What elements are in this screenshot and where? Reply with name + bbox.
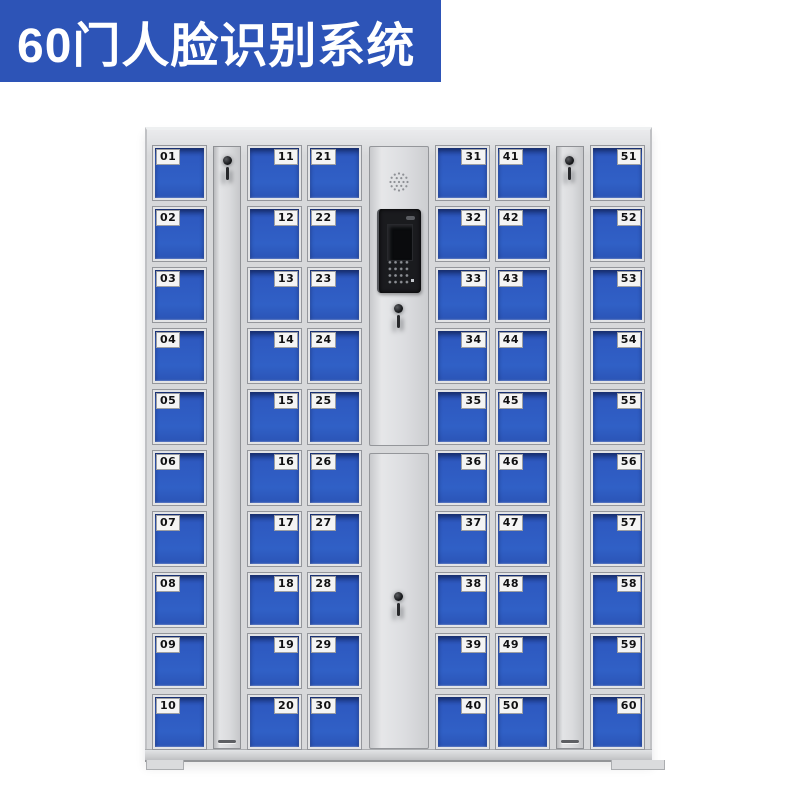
door-number-label: 57 bbox=[617, 515, 641, 531]
door-number-label: 40 bbox=[461, 698, 485, 714]
door-number-label: 60 bbox=[617, 698, 641, 714]
keyhole-circle bbox=[394, 592, 403, 601]
locker-door-37: 37 bbox=[436, 512, 489, 566]
locker-door-09: 09 bbox=[153, 634, 206, 688]
locker-door-39: 39 bbox=[436, 634, 489, 688]
door-number-label: 47 bbox=[499, 515, 523, 531]
cabinet-foot-right bbox=[611, 760, 665, 770]
keypad-highlight-dot bbox=[411, 279, 414, 282]
door-number-label: 17 bbox=[274, 515, 298, 531]
door-number-label: 25 bbox=[311, 393, 335, 409]
door-number-label: 04 bbox=[156, 332, 180, 348]
door-column-31-40: 31323334353637383940 bbox=[436, 146, 489, 749]
door-number-label: 15 bbox=[274, 393, 298, 409]
keyhole-stem bbox=[568, 167, 571, 180]
locker-door-21: 21 bbox=[308, 146, 361, 200]
door-number-label: 05 bbox=[156, 393, 180, 409]
locker-cabinet: 01020304050607080910 1112131415161718192… bbox=[145, 127, 652, 761]
keyhole-circle bbox=[394, 304, 403, 313]
locker-columns: 01020304050607080910 1112131415161718192… bbox=[147, 130, 650, 749]
locker-door-44: 44 bbox=[496, 329, 549, 383]
door-number-label: 14 bbox=[274, 332, 298, 348]
door-number-label: 22 bbox=[311, 210, 335, 226]
locker-door-25: 25 bbox=[308, 390, 361, 444]
cabinet-base bbox=[145, 749, 652, 762]
locker-door-23: 23 bbox=[308, 268, 361, 322]
locker-door-54: 54 bbox=[591, 329, 644, 383]
door-number-label: 41 bbox=[499, 149, 523, 165]
door-number-label: 32 bbox=[461, 210, 485, 226]
locker-door-55: 55 bbox=[591, 390, 644, 444]
locker-door-32: 32 bbox=[436, 207, 489, 261]
lock-strip-left bbox=[213, 146, 241, 749]
locker-door-28: 28 bbox=[308, 573, 361, 627]
locker-door-59: 59 bbox=[591, 634, 644, 688]
locker-door-34: 34 bbox=[436, 329, 489, 383]
locker-door-35: 35 bbox=[436, 390, 489, 444]
door-number-label: 23 bbox=[311, 271, 335, 287]
locker-door-07: 07 bbox=[153, 512, 206, 566]
door-number-label: 50 bbox=[499, 698, 523, 714]
door-column-51-60: 51525354555657585960 bbox=[591, 146, 644, 749]
door-number-label: 19 bbox=[274, 637, 298, 653]
door-number-label: 10 bbox=[156, 698, 180, 714]
door-number-label: 48 bbox=[499, 576, 523, 592]
locker-door-08: 08 bbox=[153, 573, 206, 627]
locker-door-41: 41 bbox=[496, 146, 549, 200]
locker-door-40: 40 bbox=[436, 695, 489, 749]
door-column-21-30: 21222324252627282930 bbox=[308, 146, 361, 749]
locker-door-29: 29 bbox=[308, 634, 361, 688]
locker-door-56: 56 bbox=[591, 451, 644, 505]
locker-door-51: 51 bbox=[591, 146, 644, 200]
door-column-41-50: 41424344454647484950 bbox=[496, 146, 549, 749]
door-number-label: 36 bbox=[461, 454, 485, 470]
locker-door-43: 43 bbox=[496, 268, 549, 322]
sensor-indicator-icon bbox=[406, 216, 415, 220]
door-number-label: 30 bbox=[311, 698, 335, 714]
locker-door-38: 38 bbox=[436, 573, 489, 627]
door-number-label: 45 bbox=[499, 393, 523, 409]
locker-door-04: 04 bbox=[153, 329, 206, 383]
door-number-label: 09 bbox=[156, 637, 180, 653]
door-number-label: 13 bbox=[274, 271, 298, 287]
door-number-label: 27 bbox=[311, 515, 335, 531]
keyhole-circle bbox=[565, 156, 574, 165]
locker-door-30: 30 bbox=[308, 695, 361, 749]
locker-door-13: 13 bbox=[248, 268, 301, 322]
locker-door-45: 45 bbox=[496, 390, 549, 444]
door-column-01-10: 01020304050607080910 bbox=[153, 146, 206, 749]
door-number-label: 18 bbox=[274, 576, 298, 592]
locker-door-57: 57 bbox=[591, 512, 644, 566]
locker-door-01: 01 bbox=[153, 146, 206, 200]
keyhole-icon bbox=[388, 302, 410, 336]
locker-door-26: 26 bbox=[308, 451, 361, 505]
locker-door-50: 50 bbox=[496, 695, 549, 749]
locker-door-36: 36 bbox=[436, 451, 489, 505]
keyhole-icon bbox=[559, 154, 581, 188]
door-number-label: 07 bbox=[156, 515, 180, 531]
door-number-label: 16 bbox=[274, 454, 298, 470]
camera-icon bbox=[387, 224, 413, 261]
locker-door-19: 19 bbox=[248, 634, 301, 688]
door-number-label: 08 bbox=[156, 576, 180, 592]
keypad-dots-icon bbox=[386, 258, 409, 285]
door-number-label: 38 bbox=[461, 576, 485, 592]
locker-door-49: 49 bbox=[496, 634, 549, 688]
speaker-grille-icon bbox=[386, 169, 412, 195]
keyhole-stem bbox=[226, 167, 229, 180]
locker-door-11: 11 bbox=[248, 146, 301, 200]
door-number-label: 20 bbox=[274, 698, 298, 714]
door-number-label: 29 bbox=[311, 637, 335, 653]
door-number-label: 39 bbox=[461, 637, 485, 653]
locker-door-52: 52 bbox=[591, 207, 644, 261]
keyhole-icon bbox=[388, 590, 410, 624]
door-number-label: 53 bbox=[617, 271, 641, 287]
door-number-label: 55 bbox=[617, 393, 641, 409]
door-number-label: 43 bbox=[499, 271, 523, 287]
locker-door-02: 02 bbox=[153, 207, 206, 261]
door-number-label: 37 bbox=[461, 515, 485, 531]
door-number-label: 56 bbox=[617, 454, 641, 470]
banner-title: 60门人脸识别系统 bbox=[17, 6, 415, 76]
locker-door-10: 10 bbox=[153, 695, 206, 749]
cabinet-foot-left bbox=[146, 760, 184, 770]
door-number-label: 33 bbox=[461, 271, 485, 287]
locker-door-22: 22 bbox=[308, 207, 361, 261]
locker-door-14: 14 bbox=[248, 329, 301, 383]
door-number-label: 24 bbox=[311, 332, 335, 348]
banner: 60门人脸识别系统 bbox=[0, 0, 441, 82]
locker-door-05: 05 bbox=[153, 390, 206, 444]
locker-door-53: 53 bbox=[591, 268, 644, 322]
locker-door-20: 20 bbox=[248, 695, 301, 749]
door-number-label: 42 bbox=[499, 210, 523, 226]
locker-door-17: 17 bbox=[248, 512, 301, 566]
locker-door-03: 03 bbox=[153, 268, 206, 322]
locker-door-58: 58 bbox=[591, 573, 644, 627]
locker-door-31: 31 bbox=[436, 146, 489, 200]
keyhole-stem bbox=[397, 315, 400, 328]
door-number-label: 49 bbox=[499, 637, 523, 653]
door-number-label: 02 bbox=[156, 210, 180, 226]
locker-door-60: 60 bbox=[591, 695, 644, 749]
lock-strip-right bbox=[556, 146, 584, 749]
locker-door-42: 42 bbox=[496, 207, 549, 261]
door-number-label: 21 bbox=[311, 149, 335, 165]
door-number-label: 58 bbox=[617, 576, 641, 592]
locker-door-06: 06 bbox=[153, 451, 206, 505]
locker-door-46: 46 bbox=[496, 451, 549, 505]
locker-door-27: 27 bbox=[308, 512, 361, 566]
door-number-label: 11 bbox=[274, 149, 298, 165]
door-number-label: 28 bbox=[311, 576, 335, 592]
control-panel-lower-door bbox=[369, 453, 429, 749]
control-panel-column bbox=[369, 146, 429, 749]
locker-door-48: 48 bbox=[496, 573, 549, 627]
locker-door-33: 33 bbox=[436, 268, 489, 322]
keyhole-icon bbox=[216, 154, 238, 188]
door-number-label: 59 bbox=[617, 637, 641, 653]
door-number-label: 35 bbox=[461, 393, 485, 409]
door-number-label: 01 bbox=[156, 149, 180, 165]
locker-door-47: 47 bbox=[496, 512, 549, 566]
door-number-label: 06 bbox=[156, 454, 180, 470]
vent-slot bbox=[561, 740, 580, 743]
door-column-11-20: 11121314151617181920 bbox=[248, 146, 301, 749]
door-number-label: 34 bbox=[461, 332, 485, 348]
door-number-label: 03 bbox=[156, 271, 180, 287]
locker-door-15: 15 bbox=[248, 390, 301, 444]
locker-door-12: 12 bbox=[248, 207, 301, 261]
door-number-label: 44 bbox=[499, 332, 523, 348]
door-number-label: 12 bbox=[274, 210, 298, 226]
face-recognition-screen bbox=[377, 209, 421, 293]
product-image: 60门人脸识别系统 01020304050607080910 111213141… bbox=[0, 0, 800, 800]
door-number-label: 31 bbox=[461, 149, 485, 165]
door-number-label: 52 bbox=[617, 210, 641, 226]
control-panel-upper-door bbox=[369, 146, 429, 446]
locker-door-24: 24 bbox=[308, 329, 361, 383]
locker-door-16: 16 bbox=[248, 451, 301, 505]
door-number-label: 46 bbox=[499, 454, 523, 470]
door-number-label: 54 bbox=[617, 332, 641, 348]
door-number-label: 26 bbox=[311, 454, 335, 470]
locker-door-18: 18 bbox=[248, 573, 301, 627]
keyhole-circle bbox=[223, 156, 232, 165]
keyhole-stem bbox=[397, 603, 400, 616]
door-number-label: 51 bbox=[617, 149, 641, 165]
vent-slot bbox=[218, 740, 237, 743]
